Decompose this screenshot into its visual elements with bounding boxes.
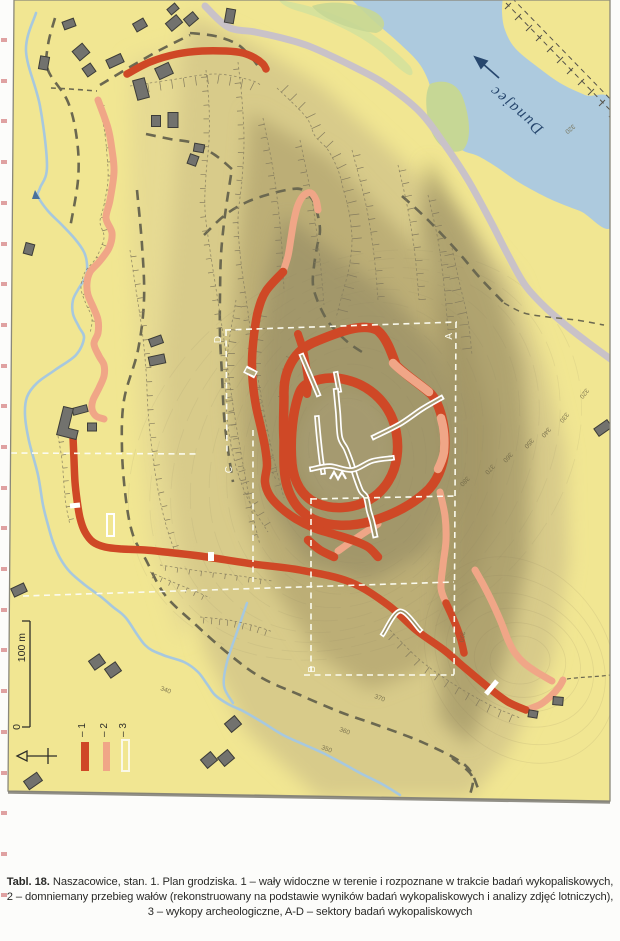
- svg-text:100 m: 100 m: [16, 633, 28, 662]
- svg-text:A: A: [444, 333, 455, 340]
- svg-text:C: C: [224, 466, 235, 473]
- svg-text:0: 0: [11, 724, 23, 730]
- svg-text:B: B: [307, 666, 318, 673]
- svg-text:– 2: – 2: [99, 723, 110, 737]
- svg-text:– 1: – 1: [77, 723, 88, 737]
- svg-text:D: D: [213, 336, 224, 343]
- svg-text:– 3: – 3: [118, 723, 129, 737]
